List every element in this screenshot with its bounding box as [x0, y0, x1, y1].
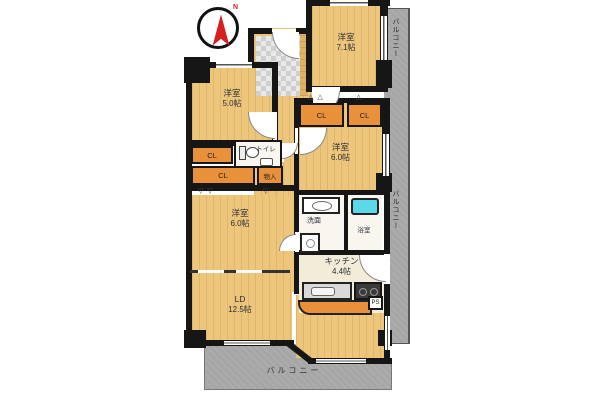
closet: CL — [299, 103, 344, 127]
window — [224, 341, 270, 345]
pipe-shaft-label: PS — [371, 300, 379, 306]
ld-label: LD12.5帖 — [190, 294, 290, 315]
storage-label: 物入 — [264, 171, 277, 181]
closet: CL — [347, 103, 382, 127]
folding-door-mark: △△ — [308, 94, 327, 101]
closet-label: CL — [360, 111, 370, 120]
folding-door-mark: △ — [356, 94, 365, 101]
toilet-tank-icon — [239, 146, 246, 160]
room-71-label: 洋室7.1帖 — [306, 32, 386, 53]
compass-north-arrow-icon — [206, 13, 236, 47]
wall — [344, 195, 348, 252]
burner-icon — [370, 288, 378, 296]
closet-label: CL — [317, 111, 327, 120]
bathroom-label: 浴室 — [358, 228, 371, 235]
burner-icon — [359, 288, 367, 296]
washbasin-icon — [302, 197, 340, 214]
window — [216, 62, 252, 68]
window — [383, 134, 389, 176]
kitchen-label: キッチン4.4帖 — [299, 256, 384, 277]
hand-basin-icon — [260, 158, 273, 166]
room-50-label: 洋室5.0帖 — [192, 88, 272, 109]
room-60e-label: 洋室6.0帖 — [299, 142, 382, 163]
kitchen-counter — [298, 300, 372, 315]
closet-label: CL — [207, 151, 217, 160]
room-60w-floor — [192, 195, 290, 270]
toilet-label: トイレ — [256, 147, 276, 154]
wall — [376, 60, 392, 88]
balcony-bottom-label: バルコニー — [267, 367, 322, 375]
compass-north-label: N — [233, 4, 238, 11]
kitchen-sink-icon — [311, 287, 335, 296]
washroom-label: 洗面 — [307, 218, 321, 225]
closet-label: CL — [218, 171, 228, 180]
sliding-partition-gap — [198, 270, 224, 273]
washbasin-bowl-icon — [312, 201, 332, 211]
balcony-right-label-top: バルコニー — [390, 18, 400, 58]
window — [330, 0, 368, 6]
pipe-shaft: PS — [368, 296, 383, 310]
kitchen-sink-unit — [302, 282, 352, 300]
balcony-right-label-mid: バルコニー — [390, 190, 400, 230]
room-60w-label: 洋室6.0帖 — [190, 208, 290, 229]
folding-door-mark: ▽ — [263, 188, 272, 195]
window — [385, 316, 390, 350]
sliding-partition-gap — [236, 270, 262, 273]
balcony-bottom-right — [310, 362, 392, 390]
storage: 物入 — [257, 166, 283, 185]
floor-plan: CL CL 物入 CL CL ▽▽ ▽ △△ △ PS 洋室7.1帖 洋室5.0… — [0, 0, 600, 400]
washing-machine-drum — [306, 239, 315, 248]
window — [316, 359, 366, 363]
closet: CL — [191, 146, 233, 164]
compass — [197, 7, 239, 49]
wall — [248, 28, 254, 66]
washing-machine-icon — [300, 233, 320, 253]
folding-door-mark: ▽▽ — [198, 188, 217, 195]
bathtub-icon — [351, 198, 379, 215]
closet: CL — [191, 166, 255, 185]
